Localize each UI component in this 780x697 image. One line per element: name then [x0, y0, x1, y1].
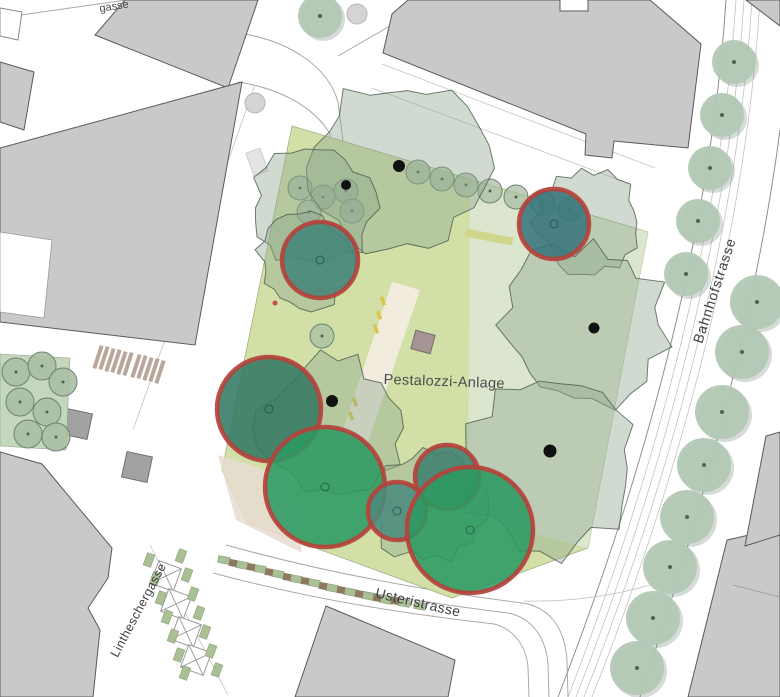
tree-center-dot — [708, 166, 712, 170]
tree-center-dot — [19, 401, 22, 404]
highlighted-tree-circle-tree-2 — [519, 189, 589, 259]
tree-center-dot — [489, 190, 492, 193]
tree-center-dot — [318, 14, 322, 18]
tree-trunk-dot — [544, 445, 557, 458]
small-structure — [122, 452, 153, 483]
tree-center-dot — [684, 272, 688, 276]
tree-center-dot — [515, 196, 518, 199]
tree-center-dot — [720, 410, 724, 414]
tree-trunk-dot — [589, 323, 600, 334]
tree-center-dot — [732, 60, 736, 64]
stall-box-brown — [228, 559, 237, 567]
tree-center-dot — [685, 515, 689, 519]
stall-box-brown — [354, 590, 363, 598]
building-outline — [0, 8, 22, 40]
tree-center-dot — [62, 381, 65, 384]
stall-box-brown — [336, 586, 345, 594]
building-courtyard — [0, 232, 52, 318]
tree-trunk-dot — [393, 160, 405, 172]
highlighted-tree-circle-tree-4 — [265, 427, 385, 547]
tree-center-dot — [668, 565, 672, 569]
tree-trunk-dot — [341, 180, 351, 190]
tree-center-dot — [755, 300, 759, 304]
tree-center-dot — [41, 365, 44, 368]
tree-center-dot — [27, 433, 30, 436]
tree-center-dot — [696, 219, 700, 223]
site-plan-map: gasse Pestalozzi-Anlage Usteristrasse Ba… — [0, 0, 780, 697]
poi-dot — [273, 301, 278, 306]
site-plan-page: gasse Pestalozzi-Anlage Usteristrasse Ba… — [0, 0, 780, 697]
tree-center-dot — [740, 350, 744, 354]
tree-center-dot — [55, 436, 58, 439]
highlighted-tree-circle-tree-1 — [282, 222, 358, 298]
tree-center-dot — [321, 335, 324, 338]
plaza-circle — [245, 93, 265, 113]
tree-center-dot — [651, 616, 655, 620]
tree-trunk-dot — [326, 395, 338, 407]
tree-center-dot — [15, 371, 18, 374]
stall-box-brown — [300, 577, 309, 585]
tree-center-dot — [702, 463, 706, 467]
tree-center-dot — [46, 411, 49, 414]
tree-center-dot — [720, 113, 724, 117]
stall-box-brown — [246, 563, 255, 571]
tree-center-dot — [635, 666, 639, 670]
stall-box-brown — [318, 582, 327, 590]
stall-box-brown — [264, 568, 273, 576]
stall-box-brown — [282, 573, 291, 581]
highlighted-tree-circle-tree-7 — [407, 467, 533, 593]
plaza-circle — [347, 4, 367, 24]
